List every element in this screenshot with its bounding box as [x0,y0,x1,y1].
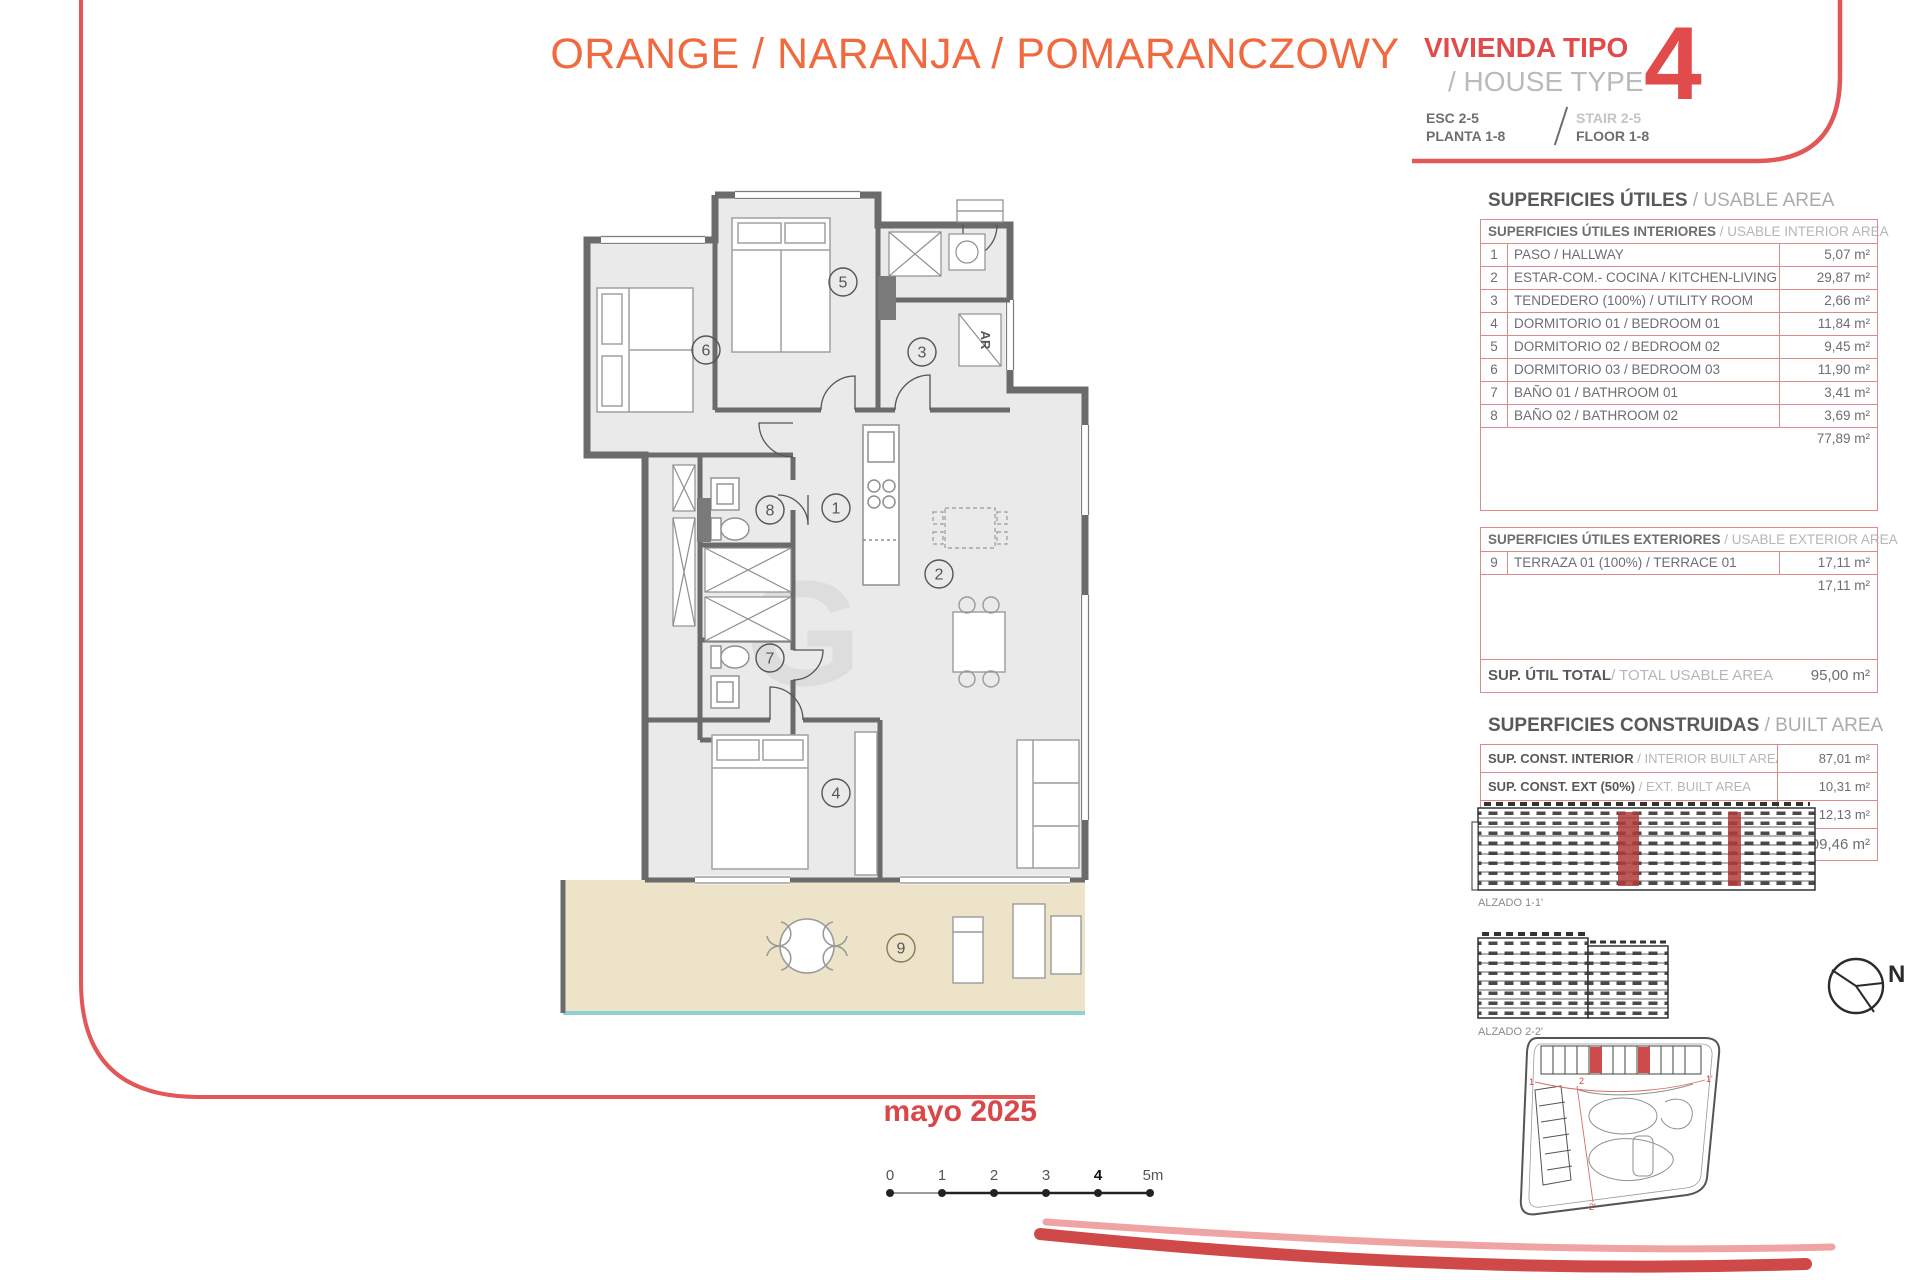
svg-text:2': 2' [1589,1202,1596,1212]
shaft-box-1 [697,498,711,542]
elevation-1-1: ALZADO 1-1' [1472,804,1815,909]
svg-text:2: 2 [990,1167,998,1184]
row-value: 17,11 m² [1779,552,1877,574]
highlight-unit-b [1728,812,1741,886]
highlight-unit-a [1618,812,1639,886]
page-title: ORANGE / NARANJA / POMARANCZOWY [545,30,1405,79]
alzado1-label: ALZADO 1-1' [1478,897,1543,909]
date-label: mayo 2025 [865,1095,1037,1129]
total-usable-label-en: / TOTAL USABLE AREA [1611,660,1773,692]
floorplan-sheet: ORANGE / NARANJA / POMARANCZOWY VIVIENDA… [0,0,1920,1280]
built-table-row: SUP. CONST. INTERIOR / INTERIOR BUILT AR… [1481,745,1877,773]
exterior-header-en: / USABLE EXTERIOR AREA [1721,532,1898,547]
interior-header-en: / USABLE INTERIOR AREA [1716,224,1889,239]
exterior-rows: 9 TERRAZA 01 (100%) / TERRACE 01 17,11 m… [1481,552,1877,575]
interior-filler [1481,450,1877,510]
planta-label: PLANTA 1-8 [1426,128,1505,146]
row-number: 3 [1481,290,1508,312]
built-area-title-es: SUPERFICIES CONSTRUIDAS [1488,715,1759,736]
area-table-row: 7 BAÑO 01 / BATHROOM 01 3,41 m² [1481,382,1877,405]
site-left-building [1535,1086,1572,1185]
area-table-row: 1 PASO / HALLWAY 5,07 m² [1481,244,1877,267]
svg-text:5: 5 [839,275,848,292]
interior-table-header: SUPERFICIES ÚTILES INTERIORES / USABLE I… [1481,220,1877,244]
exterior-subtotal: 17,11 m² [1481,575,1877,597]
svg-text:1: 1 [938,1167,946,1184]
exterior-table-header: SUPERFICIES ÚTILES EXTERIORES / USABLE E… [1481,528,1877,552]
stair-label: STAIR 2-5 [1576,110,1649,128]
esc-planta-label: ESC 2-5 PLANTA 1-8 [1426,110,1505,145]
closet-ar-label: AR [978,331,993,350]
row-number: 8 [1481,405,1508,427]
total-usable-label-es: SUP. ÚTIL TOTAL [1488,660,1611,692]
bed-bedroom-01 [712,735,808,869]
area-table-row: 8 BAÑO 02 / BATHROOM 02 3,69 m² [1481,405,1877,428]
vivienda-tipo-label: VIVIENDA TIPO [1424,32,1628,64]
hall-wardrobes [673,465,695,626]
svg-text:7: 7 [766,651,775,668]
built-area-title-en: / BUILT AREA [1759,715,1883,736]
row-label: ESTAR-COM.- COCINA / KITCHEN-LIVING [1508,267,1779,289]
row-label: SUP. CONST. INTERIOR / INTERIOR BUILT AR… [1481,745,1777,772]
row-label: DORMITORIO 01 / BEDROOM 01 [1508,313,1779,335]
total-usable-value: 95,00 m² [1811,660,1870,692]
row-value: 11,90 m² [1779,359,1877,381]
svg-text:0: 0 [886,1167,894,1184]
bedroom01-wardrobe [855,732,877,875]
svg-text:1: 1 [832,501,841,518]
row-label: BAÑO 02 / BATHROOM 02 [1508,405,1779,427]
house-type-number: 4 [1644,12,1702,116]
site-plan: 1 1' 2 2' [1495,1032,1815,1232]
stair-floor-label: STAIR 2-5 FLOOR 1-8 [1576,110,1649,145]
svg-text:2: 2 [935,567,944,584]
scale-bar: 0 1 2 3 4 5m [872,1160,1172,1210]
svg-text:4: 4 [832,786,841,803]
area-tables-panel: SUPERFICIES ÚTILES / USABLE AREA SUPERFI… [1480,190,1878,861]
usable-area-title-es: SUPERFICIES ÚTILES [1488,190,1688,211]
row-number: 9 [1481,552,1508,574]
svg-text:6: 6 [702,343,711,360]
svg-text:5m: 5m [1143,1167,1164,1184]
terrace-lounger [953,917,983,983]
row-value: 29,87 m² [1779,267,1877,289]
svg-text:1': 1' [1706,1074,1713,1084]
exterior-filler [1481,597,1877,659]
entry-steps [957,200,1003,222]
row-value: 9,45 m² [1779,336,1877,358]
bed-bedroom-02 [732,218,830,352]
area-table-row: 6 DORMITORIO 03 / BEDROOM 03 11,90 m² [1481,359,1877,382]
svg-text:2: 2 [1579,1076,1584,1086]
area-table-row: 5 DORMITORIO 02 / BEDROOM 02 9,45 m² [1481,336,1877,359]
area-table-row: 3 TENDEDERO (100%) / UTILITY ROOM 2,66 m… [1481,290,1877,313]
bed-bedroom-03 [597,288,693,412]
row-value: 3,41 m² [1779,382,1877,404]
house-type-label: / HOUSE TYPE [1448,66,1644,98]
row-number: 2 [1481,267,1508,289]
row-number: 7 [1481,382,1508,404]
shaft-box-2 [878,276,896,320]
built-area-title: SUPERFICIES CONSTRUIDAS / BUILT AREA [1488,715,1878,737]
site-gardens [1579,1084,1693,1181]
scale-labels: 0 1 2 3 4 5m [886,1167,1164,1184]
svg-text:4: 4 [1094,1167,1103,1184]
elevation-2-2: ALZADO 2-2' [1478,934,1668,1038]
floor-label: FLOOR 1-8 [1576,128,1649,146]
svg-text:3: 3 [1042,1167,1050,1184]
row-number: 5 [1481,336,1508,358]
usable-area-table: SUPERFICIES ÚTILES INTERIORES / USABLE I… [1480,219,1878,511]
header-slash-divider [1554,107,1568,146]
house-type-block: VIVIENDA TIPO / HOUSE TYPE 4 ESC 2-5 PLA… [1418,26,1748,156]
row-value: 3,69 m² [1779,405,1877,427]
row-value: 87,01 m² [1777,745,1877,772]
exterior-header-es: SUPERFICIES ÚTILES EXTERIORES [1488,532,1721,547]
area-table-row: 4 DORMITORIO 01 / BEDROOM 01 11,84 m² [1481,313,1877,336]
usable-area-title-en: / USABLE AREA [1688,190,1835,211]
row-label: TENDEDERO (100%) / UTILITY ROOM [1508,290,1779,312]
row-number: 6 [1481,359,1508,381]
usable-area-title: SUPERFICIES ÚTILES / USABLE AREA [1488,190,1878,212]
site-highlight-unit-a [1590,1047,1602,1073]
row-number: 1 [1481,244,1508,266]
north-compass: N [1818,948,1918,1024]
svg-text:8: 8 [766,503,775,520]
floor-plan: G [545,180,1105,1020]
row-label: TERRAZA 01 (100%) / TERRACE 01 [1508,552,1779,574]
row-label: PASO / HALLWAY [1508,244,1779,266]
esc-label: ESC 2-5 [1426,110,1505,128]
site-building-strip [1541,1046,1701,1074]
interior-subtotal: 77,89 m² [1481,428,1877,450]
north-label: N [1888,961,1905,988]
svg-text:9: 9 [897,941,906,958]
site-highlight-unit-b [1638,1047,1650,1073]
row-label: BAÑO 01 / BATHROOM 01 [1508,382,1779,404]
exterior-area-table: SUPERFICIES ÚTILES EXTERIORES / USABLE E… [1480,527,1878,693]
interior-header-es: SUPERFICIES ÚTILES INTERIORES [1488,224,1716,239]
total-usable-row: SUP. ÚTIL TOTAL / TOTAL USABLE AREA 95,0… [1481,659,1877,692]
svg-text:1: 1 [1529,1077,1534,1087]
sofa [1017,740,1079,868]
row-label: DORMITORIO 03 / BEDROOM 03 [1508,359,1779,381]
area-table-row: 2 ESTAR-COM.- COCINA / KITCHEN-LIVING 29… [1481,267,1877,290]
row-value: 5,07 m² [1779,244,1877,266]
row-value: 2,66 m² [1779,290,1877,312]
row-label: DORMITORIO 02 / BEDROOM 02 [1508,336,1779,358]
svg-text:3: 3 [918,345,927,362]
interior-rows: 1 PASO / HALLWAY 5,07 m² 2 ESTAR-COM.- C… [1481,244,1877,428]
row-number: 4 [1481,313,1508,335]
row-value: 11,84 m² [1779,313,1877,335]
area-table-row: 9 TERRAZA 01 (100%) / TERRACE 01 17,11 m… [1481,552,1877,575]
kitchen-counter [863,425,899,585]
